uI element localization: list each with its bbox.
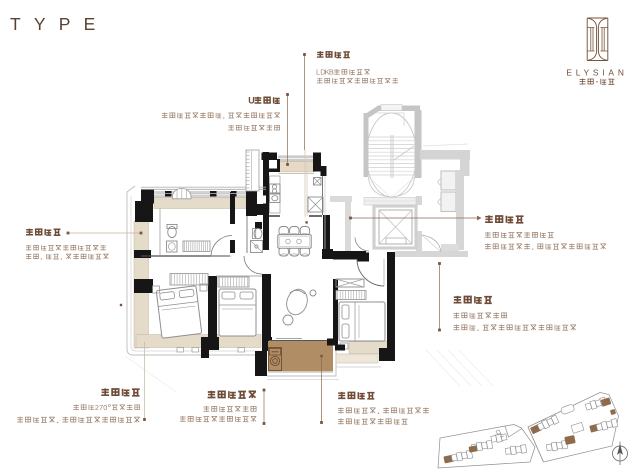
svg-text:ELYSIAN: ELYSIAN <box>566 68 627 78</box>
svg-text:0: 0 <box>103 403 107 412</box>
svg-text:TYPE: TYPE <box>10 14 109 34</box>
svg-text:B: B <box>329 68 334 77</box>
svg-text:U: U <box>248 96 255 106</box>
